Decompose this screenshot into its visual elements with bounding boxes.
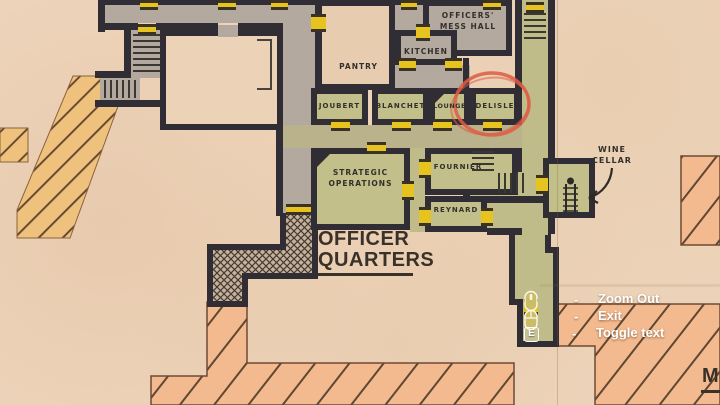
door — [271, 0, 288, 10]
salmon-hatch-zone-bottom-right — [557, 304, 720, 405]
door — [218, 0, 236, 10]
door — [445, 58, 462, 71]
edge-partial-underline — [701, 390, 720, 393]
wall — [95, 71, 131, 78]
hud-separator: - — [572, 326, 576, 341]
wall — [276, 125, 283, 216]
door — [286, 204, 311, 215]
stairs — [104, 80, 136, 98]
label-mess-hall: OFFICERS'MESS HALL — [424, 10, 512, 32]
stairs — [133, 34, 160, 76]
room-wine-cellar — [543, 158, 595, 218]
stairs — [524, 13, 546, 43]
wall — [487, 228, 522, 235]
label-blanchet: BLANCHET — [373, 102, 428, 110]
door — [311, 14, 326, 32]
label-reynard: REYNARD — [427, 206, 485, 214]
hud-label-exit: Exit — [598, 308, 622, 323]
wall — [156, 23, 218, 30]
edge-partial-label: M — [702, 366, 719, 387]
door-joubert — [331, 119, 350, 131]
wall — [95, 100, 169, 107]
wall — [238, 23, 283, 30]
door-wine-cellar — [536, 175, 548, 194]
wall — [548, 0, 555, 170]
room-unexplored — [160, 30, 283, 130]
corridor-main-horizontal — [283, 125, 545, 148]
wall — [105, 0, 322, 5]
e-key-icon: E — [524, 327, 539, 342]
game-map-screen[interactable]: OFFICERS'MESS HALL KITCHEN PANTRY JOUBER… — [0, 0, 720, 405]
stairs — [498, 173, 524, 193]
door — [140, 0, 158, 10]
salmon-hatch-zone-bottom — [151, 302, 514, 405]
wall — [98, 0, 105, 32]
corridor-reynard-stub — [487, 203, 548, 228]
salmon-hatch-zone-right — [681, 156, 720, 245]
hud-separator: - — [574, 292, 578, 307]
door — [399, 58, 416, 71]
door-strategic-north — [367, 142, 386, 154]
door-lounge — [433, 119, 452, 131]
room-opening-patch — [218, 25, 238, 37]
label-strategic-operations: STRATEGICOPERATIONS — [315, 167, 406, 189]
door — [483, 0, 501, 10]
region-title: OFFICERQUARTERS — [318, 229, 434, 271]
wall — [315, 0, 322, 81]
room-pantry — [322, 0, 395, 90]
door-blanchet — [392, 119, 411, 131]
label-kitchen: KITCHEN — [396, 47, 456, 56]
label-lounge: LOUNGE — [430, 102, 469, 110]
hud-label-toggle-text: Toggle text — [596, 325, 664, 340]
hud-label-zoom-out: Zoom Out — [598, 291, 659, 306]
label-wine-cellar: WINECELLAR — [588, 144, 636, 166]
room-reynard — [425, 196, 487, 232]
door-delisle — [483, 119, 502, 131]
wall — [105, 23, 138, 30]
label-joubert: JOUBERT — [312, 102, 367, 110]
door — [401, 0, 417, 10]
hud-separator: - — [574, 309, 578, 324]
wall — [463, 58, 469, 92]
region-title-underline — [318, 273, 413, 276]
label-fournier: FOURNIER — [429, 163, 487, 171]
paper-fold-line — [557, 0, 558, 405]
crosshatch-stair-corridor — [210, 210, 315, 304]
orange-zone-fragment — [0, 128, 28, 162]
label-delisle: DELISLE — [471, 102, 519, 110]
paper-stain-line — [540, 284, 720, 287]
label-pantry: PANTRY — [330, 62, 387, 71]
door — [138, 24, 156, 35]
door — [526, 2, 544, 13]
